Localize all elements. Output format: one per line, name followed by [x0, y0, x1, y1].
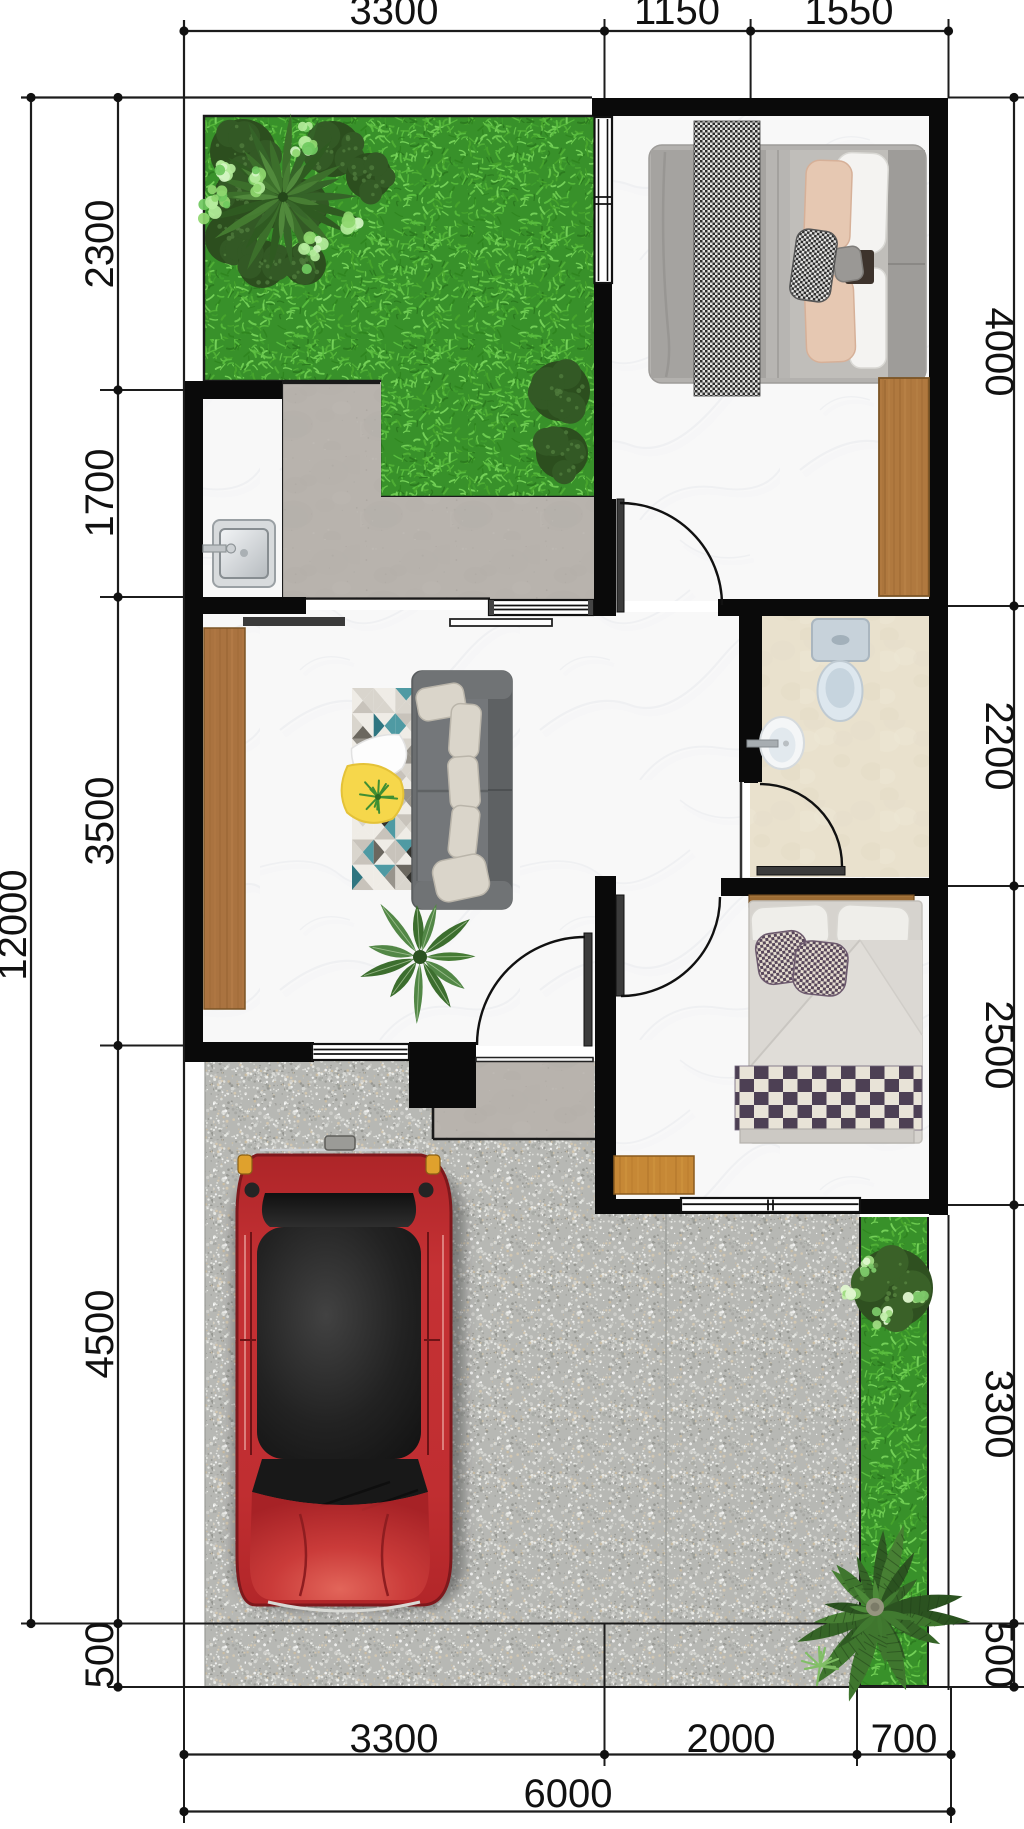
svg-text:4500: 4500 — [78, 1290, 122, 1379]
svg-text:3300: 3300 — [977, 1370, 1021, 1459]
svg-text:2300: 2300 — [78, 200, 122, 289]
svg-text:3300: 3300 — [350, 1717, 439, 1761]
svg-text:4000: 4000 — [977, 308, 1021, 397]
svg-text:12000: 12000 — [0, 869, 35, 980]
svg-text:2000: 2000 — [687, 1717, 776, 1761]
svg-text:1150: 1150 — [634, 0, 720, 33]
svg-text:1550: 1550 — [805, 0, 894, 33]
svg-text:700: 700 — [871, 1717, 938, 1761]
svg-text:3500: 3500 — [78, 777, 122, 866]
svg-text:500: 500 — [977, 1622, 1021, 1689]
svg-text:6000: 6000 — [524, 1772, 613, 1816]
svg-text:1700: 1700 — [78, 449, 122, 538]
svg-text:500: 500 — [78, 1622, 122, 1689]
svg-text:2200: 2200 — [977, 702, 1021, 791]
svg-text:3300: 3300 — [350, 0, 439, 33]
svg-text:2500: 2500 — [977, 1001, 1021, 1090]
